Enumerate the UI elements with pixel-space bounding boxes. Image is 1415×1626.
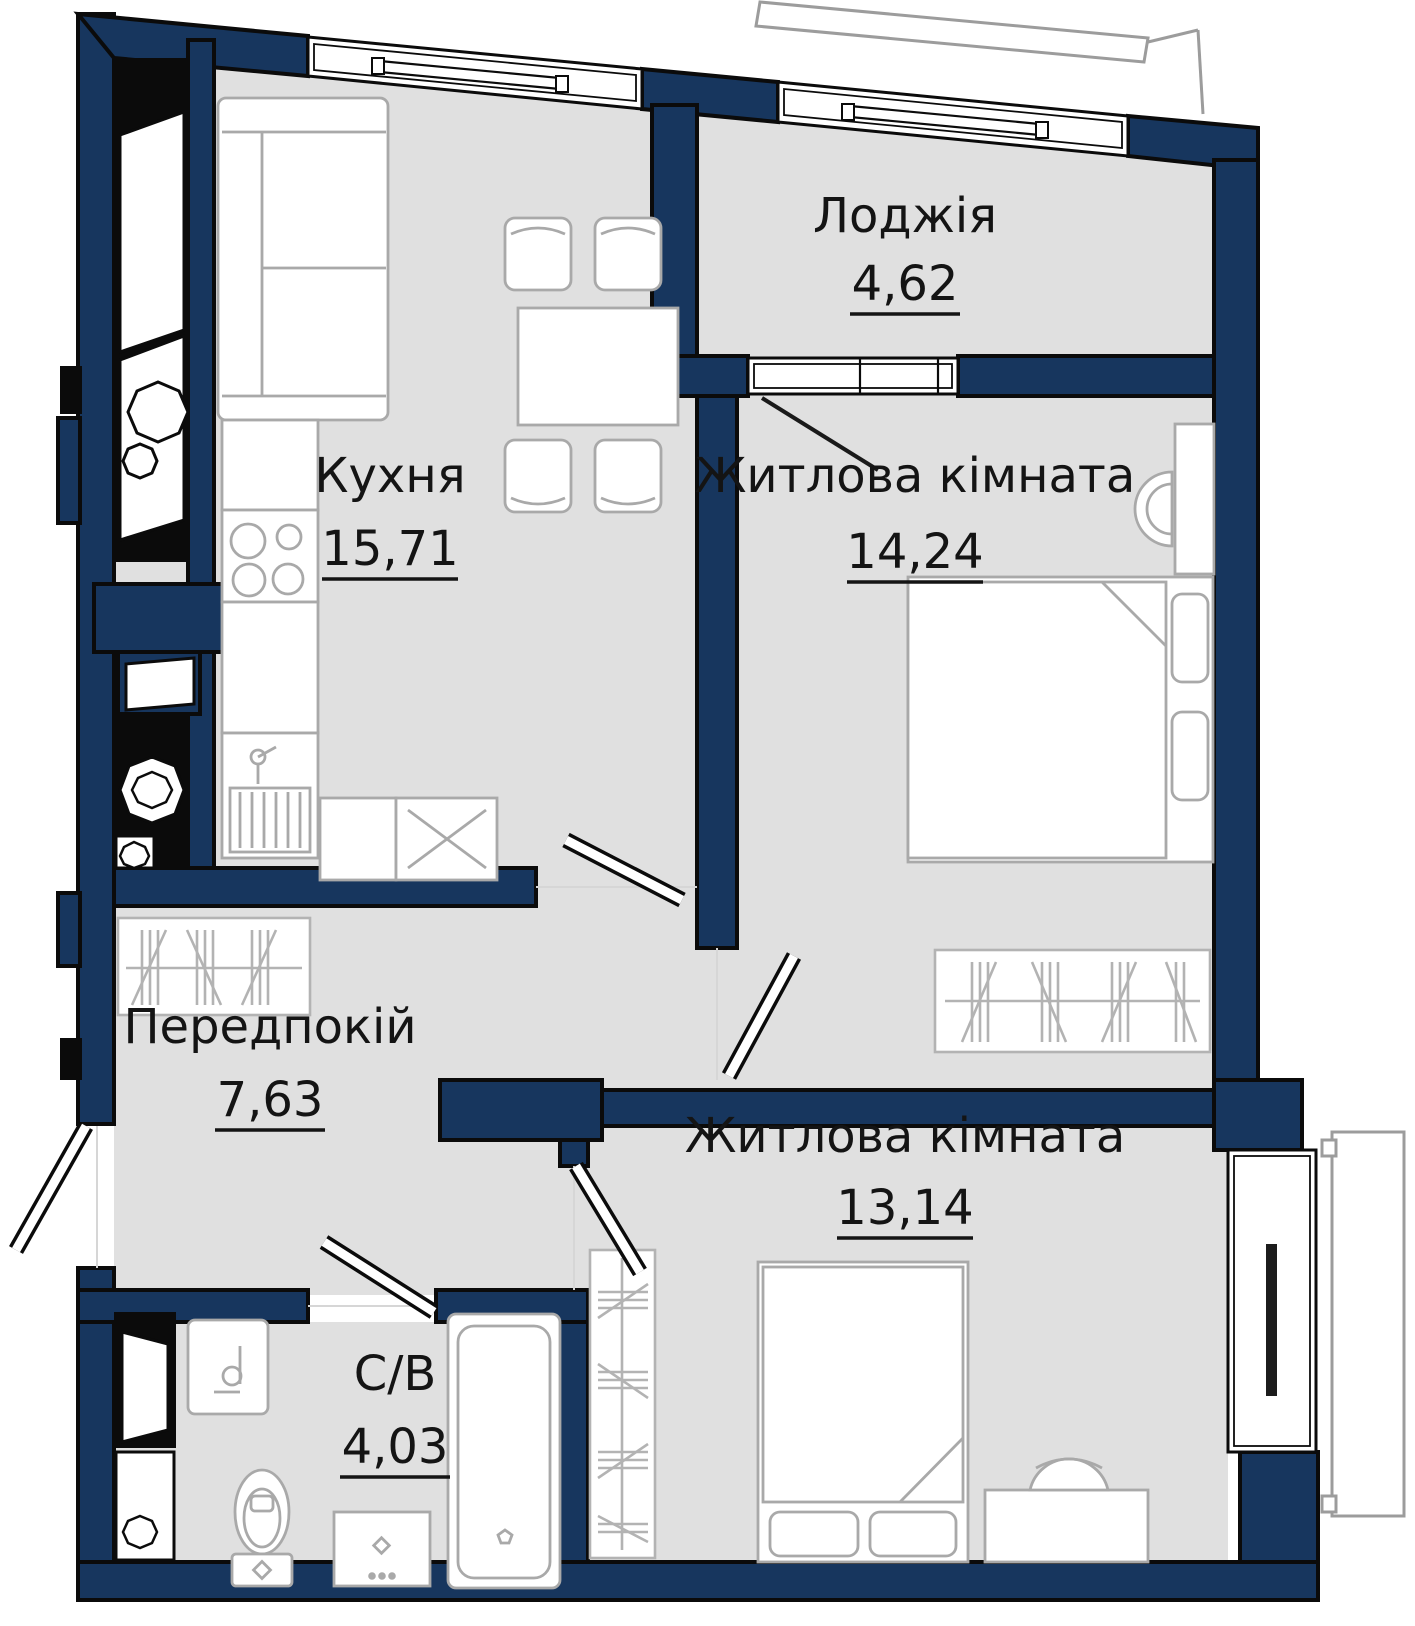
- counter: [222, 602, 318, 733]
- fan-icon-small: [123, 1516, 157, 1548]
- wall-left-upper: [78, 14, 114, 1124]
- counter: [320, 798, 396, 880]
- pillow: [1172, 594, 1208, 682]
- washing-machine-dot: [390, 1574, 395, 1579]
- sofa: [218, 98, 388, 420]
- pillow: [1172, 712, 1208, 800]
- wall-bump-black: [62, 368, 80, 412]
- stool: [505, 440, 571, 512]
- washing-machine-dot: [370, 1574, 375, 1579]
- flap-connector: [1148, 30, 1198, 42]
- wall-shaft-crossband: [94, 584, 232, 652]
- fan-icon: [128, 382, 188, 442]
- wall-bedroom2-door-stub: [560, 1140, 588, 1166]
- floor-plan: Лоджія 4,62 Кухня 15,71 Житлова кімната …: [0, 0, 1415, 1626]
- wall-pier-bottom-right-lower: [1240, 1452, 1318, 1566]
- washing-machine-dot: [380, 1574, 385, 1579]
- bathtub: [448, 1314, 560, 1588]
- burner-icon: [233, 564, 265, 596]
- wall-shaft-right-strip: [188, 40, 214, 868]
- shaft-panel: [120, 112, 184, 352]
- counter: [222, 420, 318, 510]
- room-area-bedroom1: 14,24: [846, 524, 983, 580]
- fan-icon: [120, 757, 184, 823]
- bedroom2-window-sash: [1266, 1244, 1277, 1396]
- wall-right: [1214, 160, 1258, 1090]
- desk: [985, 1490, 1148, 1562]
- flap-hinge: [1322, 1140, 1336, 1156]
- room-label-kitchen: Кухня: [314, 448, 465, 504]
- wall-loggia-bottom-right: [958, 356, 1214, 396]
- sash-end: [556, 76, 568, 92]
- bedroom2-open-window-flap: [1332, 1132, 1404, 1516]
- wall-bedroom2-top-block: [440, 1080, 602, 1140]
- wall-pier-bottom-right-upper: [1214, 1080, 1302, 1150]
- shaft-panel: [122, 1332, 168, 1442]
- room-label-hallway: Передпокій: [123, 999, 416, 1055]
- toilet-seat-hinge: [251, 1496, 273, 1511]
- sink-rack: [230, 788, 310, 852]
- shaft-notch: [126, 658, 194, 710]
- room-label-bedroom2: Житлова кімната: [685, 1108, 1126, 1164]
- fan-icon-small: [123, 444, 157, 478]
- burner-icon: [277, 525, 301, 549]
- burner-icon: [273, 564, 303, 594]
- pillow: [770, 1512, 858, 1556]
- sash-end: [372, 58, 384, 74]
- wall-bump: [58, 418, 80, 523]
- room-area-loggia: 4,62: [852, 256, 959, 312]
- wall-bump-black: [62, 1040, 80, 1078]
- room-label-loggia: Лоджія: [813, 188, 997, 244]
- flap-hinge: [1322, 1496, 1336, 1512]
- burner-icon: [231, 524, 265, 558]
- nightstand: [1175, 424, 1214, 574]
- room-area-bedroom2: 13,14: [836, 1180, 973, 1236]
- fan-icon-small: [120, 842, 149, 868]
- flap-connector: [1198, 30, 1203, 114]
- entrance-door-leaf: [16, 1126, 86, 1250]
- room-area-bathroom: 4,03: [342, 1419, 449, 1475]
- dining-table: [518, 308, 678, 425]
- room-area-kitchen: 15,71: [321, 521, 458, 577]
- duvet: [908, 582, 1166, 858]
- room-label-bathroom: С/В: [354, 1346, 437, 1402]
- wall-bump: [58, 893, 80, 966]
- loggia-open-window-flap: [756, 2, 1148, 62]
- wall-bathroom-top-left: [78, 1290, 308, 1322]
- room-area-hallway: 7,63: [217, 1072, 324, 1128]
- stool: [595, 440, 661, 512]
- room-label-bedroom1: Житлова кімната: [695, 448, 1136, 504]
- sash-end: [842, 104, 854, 120]
- sash-end: [1036, 122, 1048, 138]
- pillow: [870, 1512, 956, 1556]
